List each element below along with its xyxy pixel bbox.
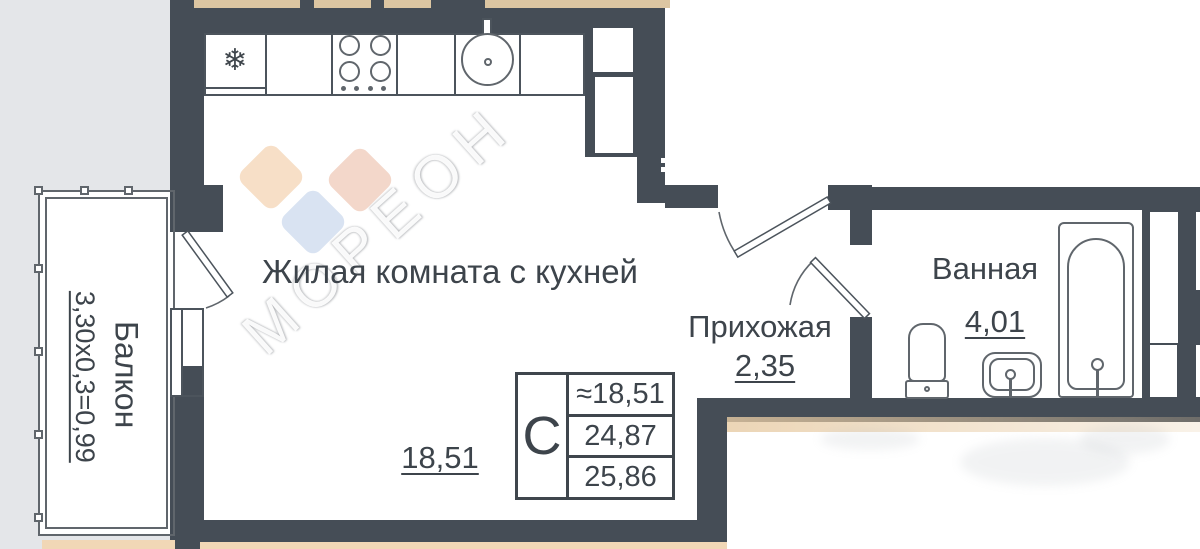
label-bathroom-area: 4,01 <box>945 305 1045 339</box>
entrance-door-arc <box>719 212 737 255</box>
label-balcony: Балкон <box>108 305 143 445</box>
label-bathroom: Ванная <box>885 252 1085 286</box>
stamp-area-no-balcony: 24,87 <box>569 414 672 456</box>
label-balcony-dimension: 3,30х0,3=0,99 <box>69 267 99 487</box>
label-hallway-area: 2,35 <box>715 349 815 383</box>
label-living-area: 18,51 <box>380 441 500 475</box>
area-stamp: С ≈18,51 24,87 25,86 <box>515 372 675 500</box>
label-hallway: Прихожая <box>660 310 860 344</box>
stamp-total-area: 25,86 <box>569 455 672 497</box>
balcony-door-arc <box>206 296 229 308</box>
label-living-room: Жилая комната с кухней <box>190 254 710 290</box>
stamp-living-area: ≈18,51 <box>569 375 672 414</box>
bathroom-door-arc <box>790 261 813 305</box>
stamp-letter: С <box>518 375 569 497</box>
entrance-door-leaf <box>734 197 831 257</box>
floor-plan: ❄ МОРЕОН Жилая комната с ку <box>0 0 1200 549</box>
